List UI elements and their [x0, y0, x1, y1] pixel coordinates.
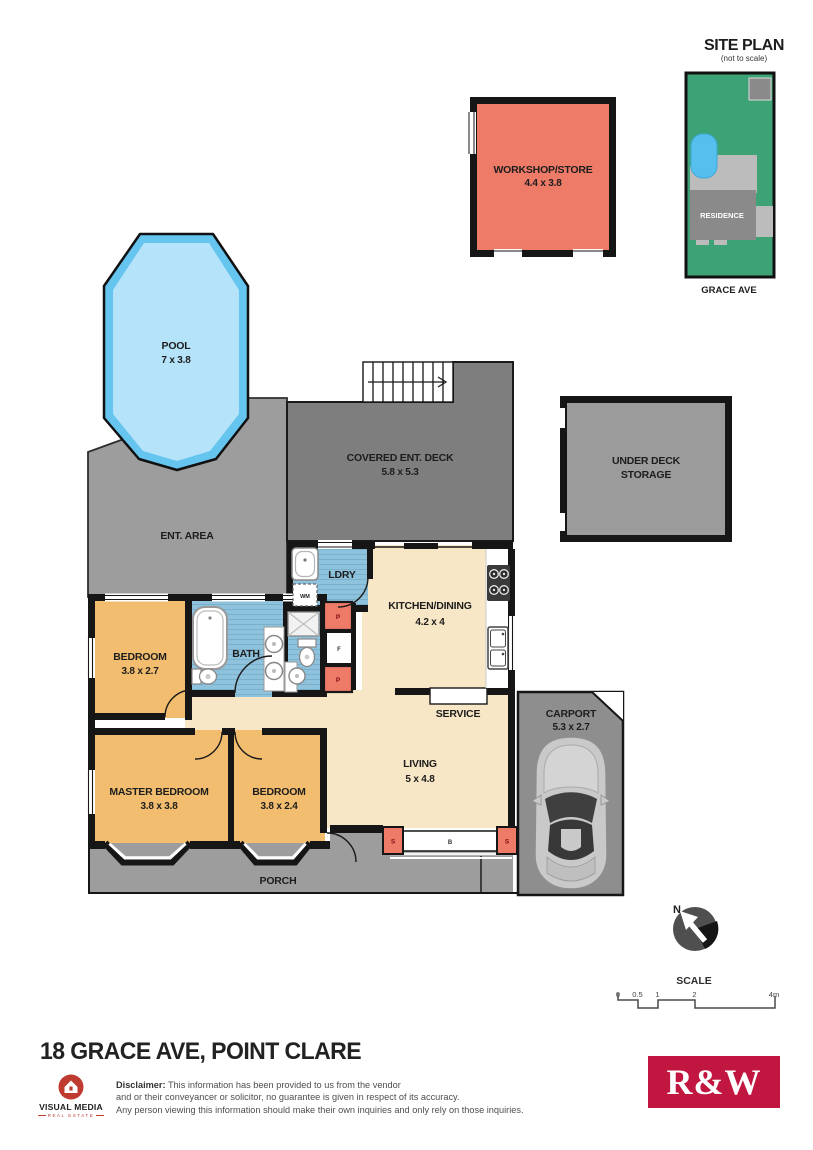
workshop-opening-2 — [573, 249, 603, 258]
laundry-tub — [292, 548, 318, 580]
svg-text:S: S — [391, 839, 396, 846]
storage-label-1: UNDER DECK — [612, 455, 681, 467]
disclaimer-line3: Any person viewing this information shou… — [116, 1104, 524, 1116]
bedroom1-label: BEDROOM — [113, 651, 167, 663]
living-dims: 5 x 4.8 — [405, 774, 435, 785]
master-dims: 3.8 x 3.8 — [140, 801, 178, 812]
site-plan: SITE PLAN (not to scale) RESIDENCE GRACE… — [686, 37, 784, 296]
scale-bar: SCALE 0 0.5 1 2 4m — [616, 975, 779, 1008]
bath-window — [212, 594, 265, 602]
living-sliding-door: S S B — [383, 827, 517, 858]
site-plan-title: SITE PLAN — [704, 37, 784, 54]
washing-machine: WM — [293, 584, 317, 606]
svg-text:4m: 4m — [769, 990, 779, 999]
laundry-label: LDRY — [328, 569, 356, 581]
scale-title: SCALE — [676, 975, 712, 987]
svg-text:P: P — [336, 614, 341, 621]
stove-icon — [487, 565, 510, 601]
storage-label-2: STORAGE — [621, 469, 672, 481]
workshop-opening — [494, 249, 522, 258]
svg-text:0.5: 0.5 — [632, 990, 642, 999]
workshop-room: WORKSHOP/STORE 4.4 x 3.8 — [467, 101, 613, 259]
disclaimer-line2: and or their conveyancer or solicitor, n… — [116, 1091, 524, 1103]
stairs — [363, 362, 453, 402]
site-workshop — [749, 78, 771, 100]
living-label: LIVING — [403, 758, 437, 770]
pool-label: POOL — [162, 340, 192, 352]
floorplan-page: SITE PLAN (not to scale) RESIDENCE GRACE… — [0, 0, 813, 1150]
laundry-window — [318, 540, 352, 549]
visual-media-name: VISUAL MEDIA — [38, 1102, 104, 1112]
bathtub — [193, 607, 227, 669]
disclaimer-label: Disclaimer: — [116, 1080, 166, 1090]
disclaimer-line1: This information has been provided to us… — [168, 1080, 401, 1090]
svg-text:1: 1 — [655, 990, 659, 999]
pool: POOL 7 x 3.8 — [104, 234, 248, 470]
master-left-window — [86, 770, 95, 814]
car-icon — [532, 737, 610, 889]
site-street-label: GRACE AVE — [701, 285, 756, 296]
visual-media-sub: REAL ESTATE — [38, 1113, 104, 1118]
kitchen-dims: 4.2 x 4 — [415, 617, 445, 628]
porch-label: PORCH — [260, 875, 297, 887]
svg-text:2: 2 — [692, 990, 696, 999]
disclaimer: Disclaimer: This information has been pr… — [116, 1079, 524, 1116]
carport-label: CARPORT — [546, 708, 597, 720]
deck-dims: 5.8 x 5.3 — [381, 467, 419, 478]
rw-logo: R&W — [648, 1056, 780, 1108]
bath-toilet — [192, 669, 217, 684]
visual-media-icon — [58, 1074, 84, 1100]
workshop-dims: 4.4 x 3.8 — [524, 178, 562, 189]
workshop-walls — [474, 101, 613, 254]
property-address: 18 GRACE AVE, POINT CLARE — [40, 1038, 361, 1066]
site-residence-label: RESIDENCE — [700, 211, 744, 220]
service-nook — [430, 688, 487, 704]
service-label: SERVICE — [436, 708, 481, 720]
site-plan-subtitle: (not to scale) — [721, 54, 768, 63]
bedroom1-top-window — [105, 594, 168, 602]
bedroom1-left-window — [86, 638, 95, 678]
shower — [288, 612, 319, 636]
master-label: MASTER BEDROOM — [109, 786, 209, 798]
svg-text:B: B — [448, 840, 453, 846]
bath-vanity — [264, 627, 284, 691]
carport-dims: 5.3 x 2.7 — [552, 722, 590, 733]
workshop-label: WORKSHOP/STORE — [493, 164, 592, 176]
bedroom1-dims: 3.8 x 2.7 — [121, 666, 159, 677]
bath-label: BATH — [232, 648, 260, 660]
north-arrow-icon: N — [673, 904, 718, 951]
wc-toilet — [298, 639, 316, 667]
svg-text:P: P — [336, 677, 341, 684]
deck-label: COVERED ENT. DECK — [347, 452, 454, 464]
site-pool — [691, 134, 717, 178]
workshop-window — [467, 112, 476, 154]
site-deck-b — [711, 155, 757, 193]
under-deck-storage: UNDER DECK STORAGE — [556, 400, 729, 539]
floorplan-canvas: SITE PLAN (not to scale) RESIDENCE GRACE… — [0, 0, 813, 1150]
bedroom2-dims: 3.8 x 2.4 — [260, 801, 298, 812]
site-deck-c — [755, 206, 773, 237]
svg-text:F: F — [337, 647, 341, 653]
kitchen-sink — [488, 627, 508, 669]
svg-text:WM: WM — [300, 594, 310, 600]
bedroom2-label: BEDROOM — [252, 786, 306, 798]
kitchen-label: KITCHEN/DINING — [388, 600, 472, 612]
carport: CARPORT 5.3 x 2.7 — [518, 692, 623, 895]
visual-media-logo: VISUAL MEDIA REAL ESTATE — [38, 1074, 104, 1118]
pool-dims: 7 x 3.8 — [161, 355, 191, 366]
ent-area-label: ENT. AREA — [160, 530, 214, 542]
svg-text:S: S — [505, 839, 510, 846]
